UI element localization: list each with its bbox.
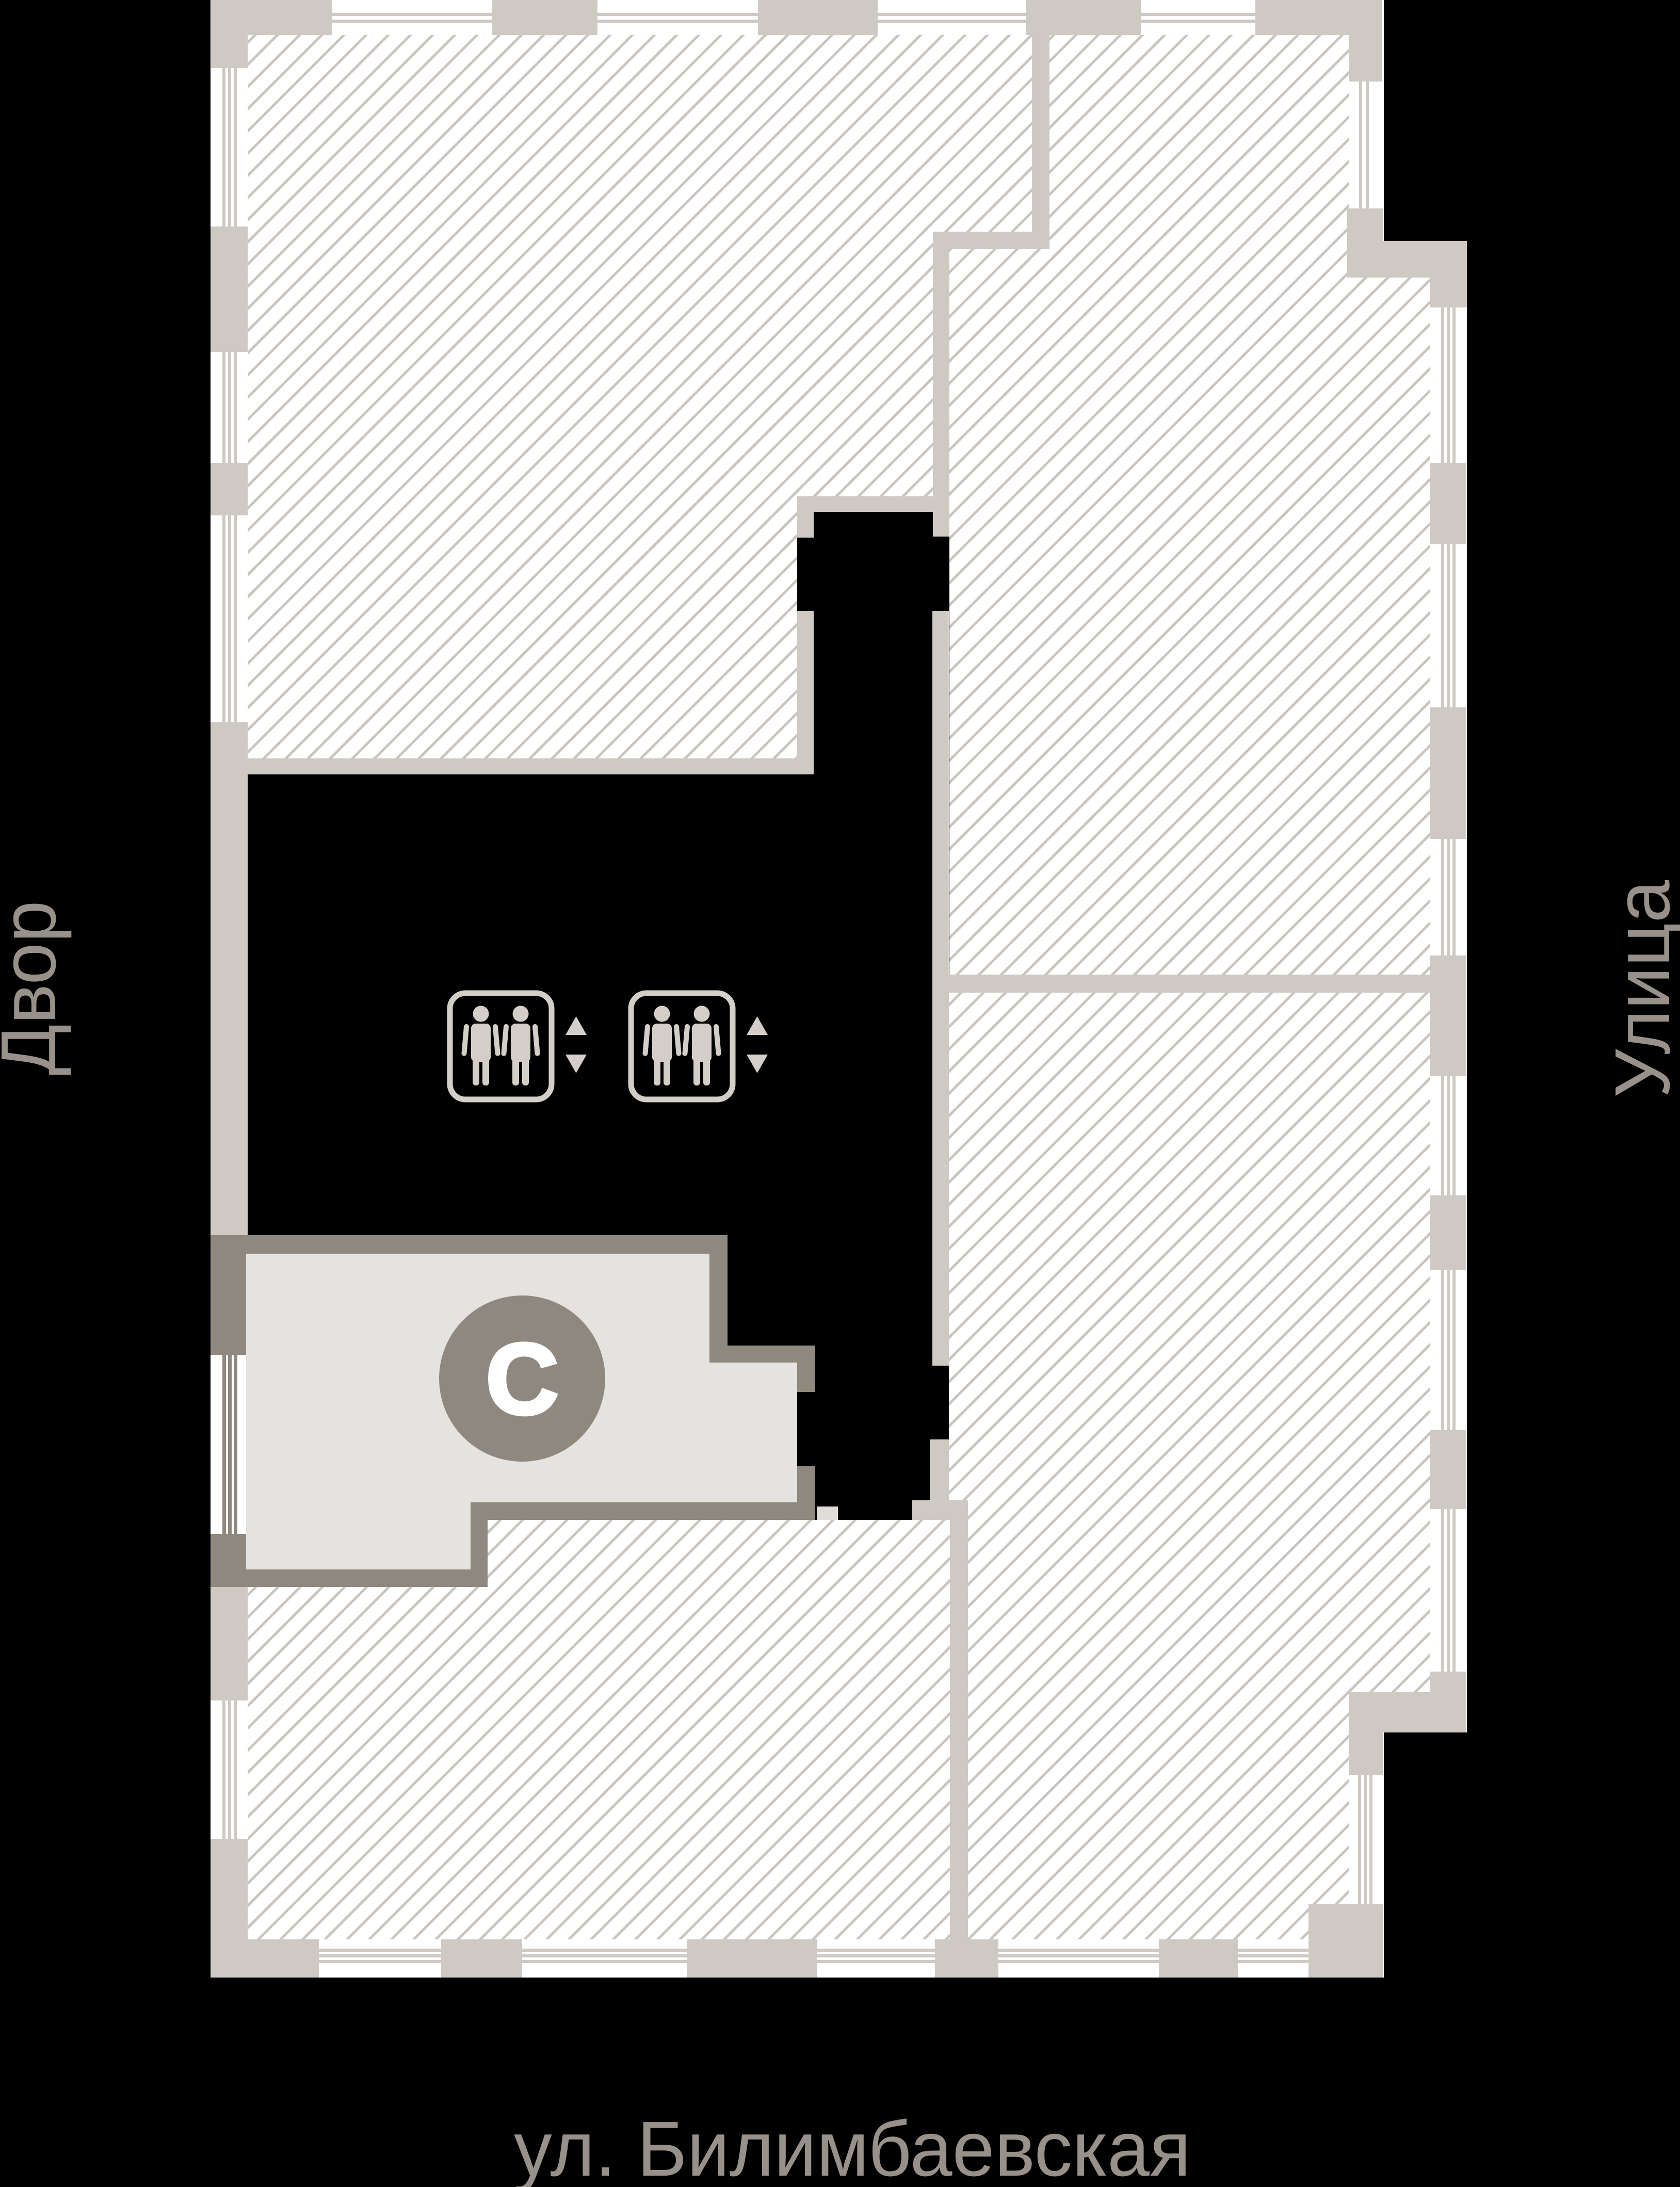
svg-text:Улица: Улица	[1598, 880, 1680, 1098]
svg-text:ул. Билимбаевская: ул. Билимбаевская	[514, 2105, 1191, 2187]
svg-text:Двор: Двор	[0, 901, 72, 1076]
svg-text:С: С	[486, 1323, 559, 1435]
